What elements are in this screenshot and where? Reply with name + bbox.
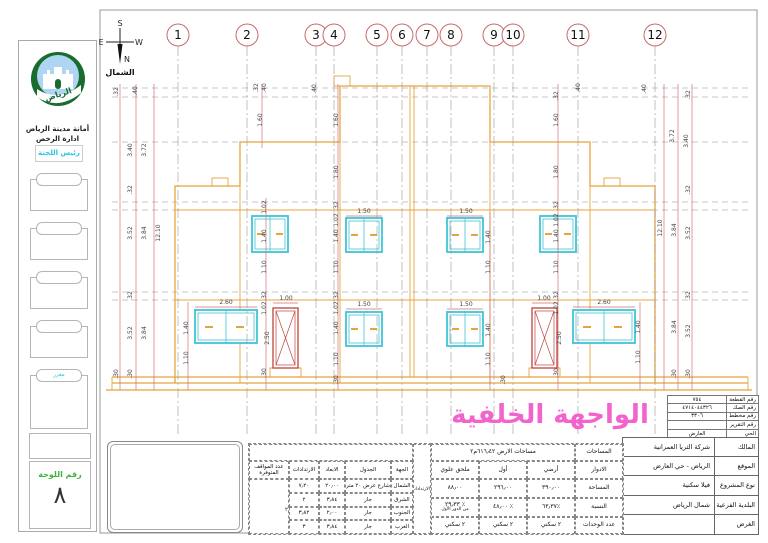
table-row: رقم مخطط ٣٣٠٦ [668,413,758,421]
info-label: رقم التقرير [726,421,758,428]
dimension-label: 1.50 [357,301,371,308]
areas-table: مساحات الارض ٦١٦٫٤٢م٢ المساحات ملحق علوي… [430,443,624,535]
table-row: الغرض [623,515,758,534]
compass-needle [118,44,123,64]
dim-value: ٢٠٫٠٠ [319,479,345,493]
floor-name: ملحق علوي [431,461,479,479]
tb-value [623,515,714,534]
dimension-label: 1.60 [553,113,560,127]
dimension-label: 2.60 [597,299,611,306]
facade-title: الواجهة الخلفية [450,400,650,430]
dimension-label: .30 [333,375,340,385]
boundary-value: شارع عرض ٢٠ متر [345,479,391,493]
info-value: ٤٧١٤٠٤٤٣٢٦ [668,404,726,411]
dimension-label: 1.10 [485,352,492,366]
dimension-label: 2.60 [219,299,233,306]
table-row: رقم الصك ٤٧١٤٠٤٤٣٢٦ [668,404,758,412]
dim-value: ٣٫٨٤ [319,520,345,534]
dimension-label: 3.52 [685,226,692,240]
dimension-label: 1.02 [333,213,340,227]
floor-units: ٢ سكني [527,517,575,534]
floor-ratio: ٪٦٣٫٣٧ [527,498,575,517]
signature-box [107,441,243,533]
dimension-label: .30 [671,369,678,379]
setback-value: ٣ [289,520,319,534]
dimension-label: 1.80 [333,165,340,179]
dimension-label: 1.50 [459,208,473,215]
dimension-label: 3.84 [141,326,148,340]
dimension-label: .30 [127,369,134,379]
compass-s: S [117,19,122,28]
table-row: رقم القطعة ٧٥٤ [668,396,758,404]
dimension-label: .32 [261,291,268,301]
floor-area: ٢٩٦٫٠٠ [479,479,527,498]
ratio-label: النسبة [575,498,623,517]
side-header: الجهة [391,461,413,479]
dimension-label: .32 [553,91,560,101]
grid-bubble-number: 8 [447,28,455,42]
dimension-label: .32 [333,201,340,211]
authority-name: أمانة مدينة الرياض [19,125,96,133]
side-value: الغرب [391,520,413,534]
side-value: الشمال [391,479,413,493]
tb-label: الغرض [714,515,758,534]
dimension-label: 1.40 [553,229,560,243]
north-arrow: S E W N الشمال [98,19,143,77]
grid-bubble-number: 10 [505,28,520,42]
dim-value: ٢٫٠٠ [319,507,345,521]
info-value: ٣٣٠٦ [668,413,726,420]
grid-bubble-number: 9 [490,28,498,42]
window-large-right [573,310,635,343]
window-pair-lower-right [447,312,483,346]
side-value: الشرق [391,493,413,507]
empty-strip [249,444,413,461]
window-large-left [195,310,257,343]
tb-label: الموقع [714,457,758,475]
dimension-lines [120,84,692,390]
boundary-value: جار [345,493,391,507]
dimension-label: 1.00 [279,295,293,302]
floor-area: ٣٩٠٫٠٠ [527,479,575,498]
tb-value: شمال الرياض [623,496,714,514]
dimension-label: 3.52 [127,226,134,240]
project-title-block: المالك شركة الثريا العمرانية الموقع الري… [622,437,759,535]
dimension-label: 1.60 [257,113,264,127]
floor-name: أول [479,461,527,479]
window-pair-lower-left [346,312,382,346]
table-row: رقم التقرير [668,421,758,429]
setbacks-table: الارتدادات عدد المواقف المتوفرة الارتداد… [248,443,432,535]
table-row: نوع المشروع فيلا سكنية [623,476,758,495]
floor-units: ٢ سكني [479,517,527,534]
grid-bubble-number: 11 [570,28,585,42]
boundary-header: الجدول [345,461,391,479]
grid-bubble-number: 3 [312,28,320,42]
dimension-label: 3.40 [683,134,690,148]
dimension-label: 1.10 [333,260,340,274]
floor-name: أرضي [527,461,575,479]
dimension-label: 1.02 [333,301,340,315]
dimension-label: 1.40 [261,229,268,243]
table-row: المالك شركة الثريا العمرانية [623,438,758,457]
dimension-label: .32 [553,291,560,301]
grid-bubble-number: 12 [647,28,662,42]
dim-value: ٣٫٨٤ [319,493,345,507]
setbacks-header: الارتدادات [289,461,319,479]
dimension-label: 1.02 [261,200,268,214]
dimension-label: 12.10 [657,219,664,236]
dimension-label: .40 [261,83,268,93]
dimension-label: 3.52 [127,326,134,340]
dimension-label: 1.00 [537,295,551,302]
info-label: رقم الصك [726,404,758,411]
dimension-label: 1.80 [553,165,560,179]
dimension-label: .32 [685,185,692,195]
boundary-value: جار [345,520,391,534]
window-single-upper-left [252,216,288,252]
info-value [668,421,726,428]
dimension-label: 1.10 [485,260,492,274]
dimension-label: 3.72 [141,143,148,157]
tb-value: شركة الثريا العمرانية [623,438,714,456]
committee-head-label: رئيس اللجنة [35,145,83,162]
grid-bubble-number: 6 [398,28,406,42]
dimension-label: 1.40 [485,323,492,337]
stamp-tab [36,173,82,186]
dimension-label: 3.52 [685,324,692,338]
dimension-label: 1.02 [261,301,268,315]
ratio-note: من الدور الأول [441,508,468,513]
units-label: عدد الوحدات [575,517,623,534]
dimension-label: 2.50 [556,331,563,345]
dimension-label: 1.40 [485,230,492,244]
dimension-label: 1.10 [261,260,268,274]
stamp-box [30,375,88,429]
dimension-label: 2.50 [264,331,271,345]
table-row: البلدية الفرعية شمال الرياض [623,496,758,515]
dimension-label: 1.40 [333,229,340,243]
dimension-label: .30 [685,369,692,379]
door-right [532,308,557,368]
stamp-tab [36,320,82,333]
sheet-number: ٨ [30,481,90,509]
dimension-label: .30 [261,368,268,378]
tb-label: المالك [714,438,758,456]
sheet-number-label: رقم اللوحة [30,470,90,479]
dimension-label: 1.40 [635,320,642,334]
dimension-label: .32 [685,90,692,100]
riyadh-municipality-logo: الرياض [19,49,96,111]
plot-info-table: رقم القطعة ٧٥٤ رقم الصك ٤٧١٤٠٤٤٣٢٦ رقم م… [667,395,759,439]
stamp-tab [36,222,82,235]
window-pair-upper-left [346,218,382,252]
grid-bubble-number: 1 [174,28,182,42]
compass-e: E [98,38,103,47]
grid-bubble-number: 5 [373,28,381,42]
area-label: المساحة [575,479,623,498]
dimension-label: 3.84 [671,320,678,334]
dimension-label: .40 [575,83,582,93]
dimension-label: 1.10 [553,260,560,274]
dimension-label: .32 [127,291,134,301]
parking-value: ٢ [249,479,289,534]
dimension-label: 1.10 [183,351,190,365]
dimension-label: .32 [553,201,560,211]
dimension-label: .32 [253,83,260,93]
tb-value: الرياض - حي العارض [623,457,714,475]
dimension-label: 3.72 [669,129,676,143]
stamp-tab-labeled: مقرر [36,369,82,382]
tb-label: البلدية الفرعية [714,496,758,514]
tb-label: نوع المشروع [714,476,758,494]
setback-value: ٣٫٨٢ [289,507,319,521]
setback-value: ٧٫٢٠ [289,479,319,493]
sidebar: الرياض أمانة مدينة الرياض ادارة الرخص رئ… [18,40,97,532]
dimension-label: .32 [127,185,134,195]
table-row: الموقع الرياض - حي العارض [623,457,758,476]
dimension-label: 1.10 [635,350,642,364]
info-value: ٧٥٤ [668,396,726,403]
dimension-label: 1.02 [553,213,560,227]
side-value: الجنوب [391,507,413,521]
dimension-label: 1.40 [183,321,190,335]
parking-header: عدد المواقف المتوفرة [249,461,289,479]
dimension-label: .32 [685,291,692,301]
land-area-value: مساحات الارض ٦١٦٫٤٢م٢ [431,444,575,461]
floors-label: الادوار [575,461,623,479]
grid-bubble-number: 4 [330,28,338,42]
compass-w: W [135,38,143,47]
dimension-label: 3.40 [127,143,134,157]
info-label: رقم القطعة [726,396,758,403]
dimension-label: .30 [113,369,120,379]
dimension-label: .32 [113,87,120,97]
floor-ratio: ٪ ٢٩٫٣٣ من الدور الأول [431,498,479,517]
dimension-label: 1.60 [333,113,340,127]
dimension-label: 1.50 [357,208,371,215]
floor-units: ٢ سكني [431,517,479,534]
areas-title: المساحات [575,444,623,461]
signature-box-inner [110,444,240,530]
window-pair-upper-right [447,218,483,252]
drawing-sheet: S E W N الشمال 123456789101112.32.403.40… [0,0,768,543]
door-left [273,308,298,368]
dimension-label: .40 [311,84,318,94]
dimension-label: .32 [333,291,340,301]
compass-n: N [124,55,130,64]
dimension-label: 1.50 [459,301,473,308]
dimension-label: 1.02 [553,301,560,315]
boundary-value: جار [345,507,391,521]
north-label: الشمال [105,68,134,77]
dims-header: الابعاد [319,461,345,479]
floor-area: ٨٨٫٠٠ [431,479,479,498]
dimension-label: 1.40 [333,321,340,335]
tb-value: فيلا سكنية [623,476,714,494]
dimension-label: .40 [641,84,648,94]
authority-dept: ادارة الرخص [19,135,96,143]
info-label: رقم مخطط [726,413,758,420]
setback-value: ٢ [289,493,319,507]
stamp-tab [36,271,82,284]
dimension-label: 3.84 [141,226,148,240]
dimension-label: .30 [553,368,560,378]
dimension-label: 1.10 [333,352,340,366]
empty-box [29,433,91,459]
grid-bubble-number: 7 [423,28,431,42]
dimension-label: .40 [132,86,139,96]
dimension-label: .30 [500,375,507,385]
setbacks-title: الارتدادات [413,444,431,534]
dimension-label: 12.10 [155,224,162,241]
floor-ratio: ٪ ٤٨٫٠٠ [479,498,527,517]
dimension-label: 3.84 [671,223,678,237]
sheet-number-box: رقم اللوحة ٨ [29,461,91,529]
grid-bubble-number: 2 [243,28,251,42]
